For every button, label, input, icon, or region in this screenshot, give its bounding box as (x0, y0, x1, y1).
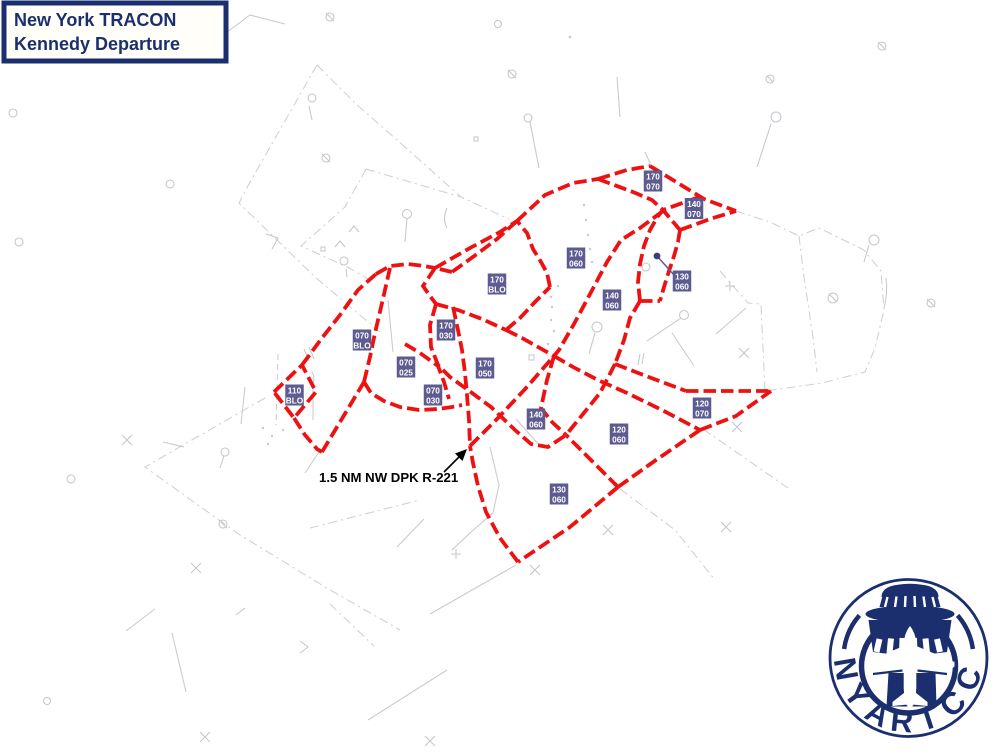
svg-text:120: 120 (695, 399, 709, 409)
svg-text:BLO: BLO (353, 340, 371, 350)
svg-text:New York TRACON: New York TRACON (14, 10, 176, 30)
svg-text:030: 030 (426, 395, 440, 405)
svg-text:BLO: BLO (488, 284, 506, 294)
svg-text:110: 110 (288, 386, 302, 396)
svg-text:070: 070 (426, 386, 440, 396)
svg-text:R: R (889, 703, 915, 740)
svg-text:025: 025 (399, 367, 413, 377)
svg-text:060: 060 (529, 419, 543, 429)
svg-text:030: 030 (439, 330, 453, 340)
svg-text:060: 060 (569, 258, 583, 268)
svg-text:060: 060 (552, 494, 566, 504)
svg-text:BLO: BLO (286, 395, 304, 405)
svg-text:070: 070 (355, 331, 369, 341)
svg-text:060: 060 (605, 300, 619, 310)
svg-text:1.5 NM NW DPK R-221: 1.5 NM NW DPK R-221 (319, 470, 458, 485)
svg-text:140: 140 (605, 291, 619, 301)
svg-text:070: 070 (695, 408, 709, 418)
svg-text:170: 170 (478, 359, 492, 369)
svg-text:070: 070 (646, 181, 660, 191)
svg-text:170: 170 (569, 249, 583, 259)
svg-text:170: 170 (439, 321, 453, 331)
svg-text:070: 070 (399, 358, 413, 368)
svg-text:170: 170 (646, 172, 660, 182)
svg-text:170: 170 (490, 275, 504, 285)
svg-text:050: 050 (478, 368, 492, 378)
svg-text:060: 060 (675, 281, 689, 291)
svg-text:130: 130 (675, 272, 689, 282)
svg-text:Kennedy Departure: Kennedy Departure (14, 34, 180, 54)
svg-text:140: 140 (529, 410, 543, 420)
svg-text:140: 140 (687, 199, 701, 209)
svg-text:130: 130 (552, 485, 566, 495)
svg-text:060: 060 (612, 434, 626, 444)
svg-text:120: 120 (612, 425, 626, 435)
svg-text:070: 070 (687, 209, 701, 219)
